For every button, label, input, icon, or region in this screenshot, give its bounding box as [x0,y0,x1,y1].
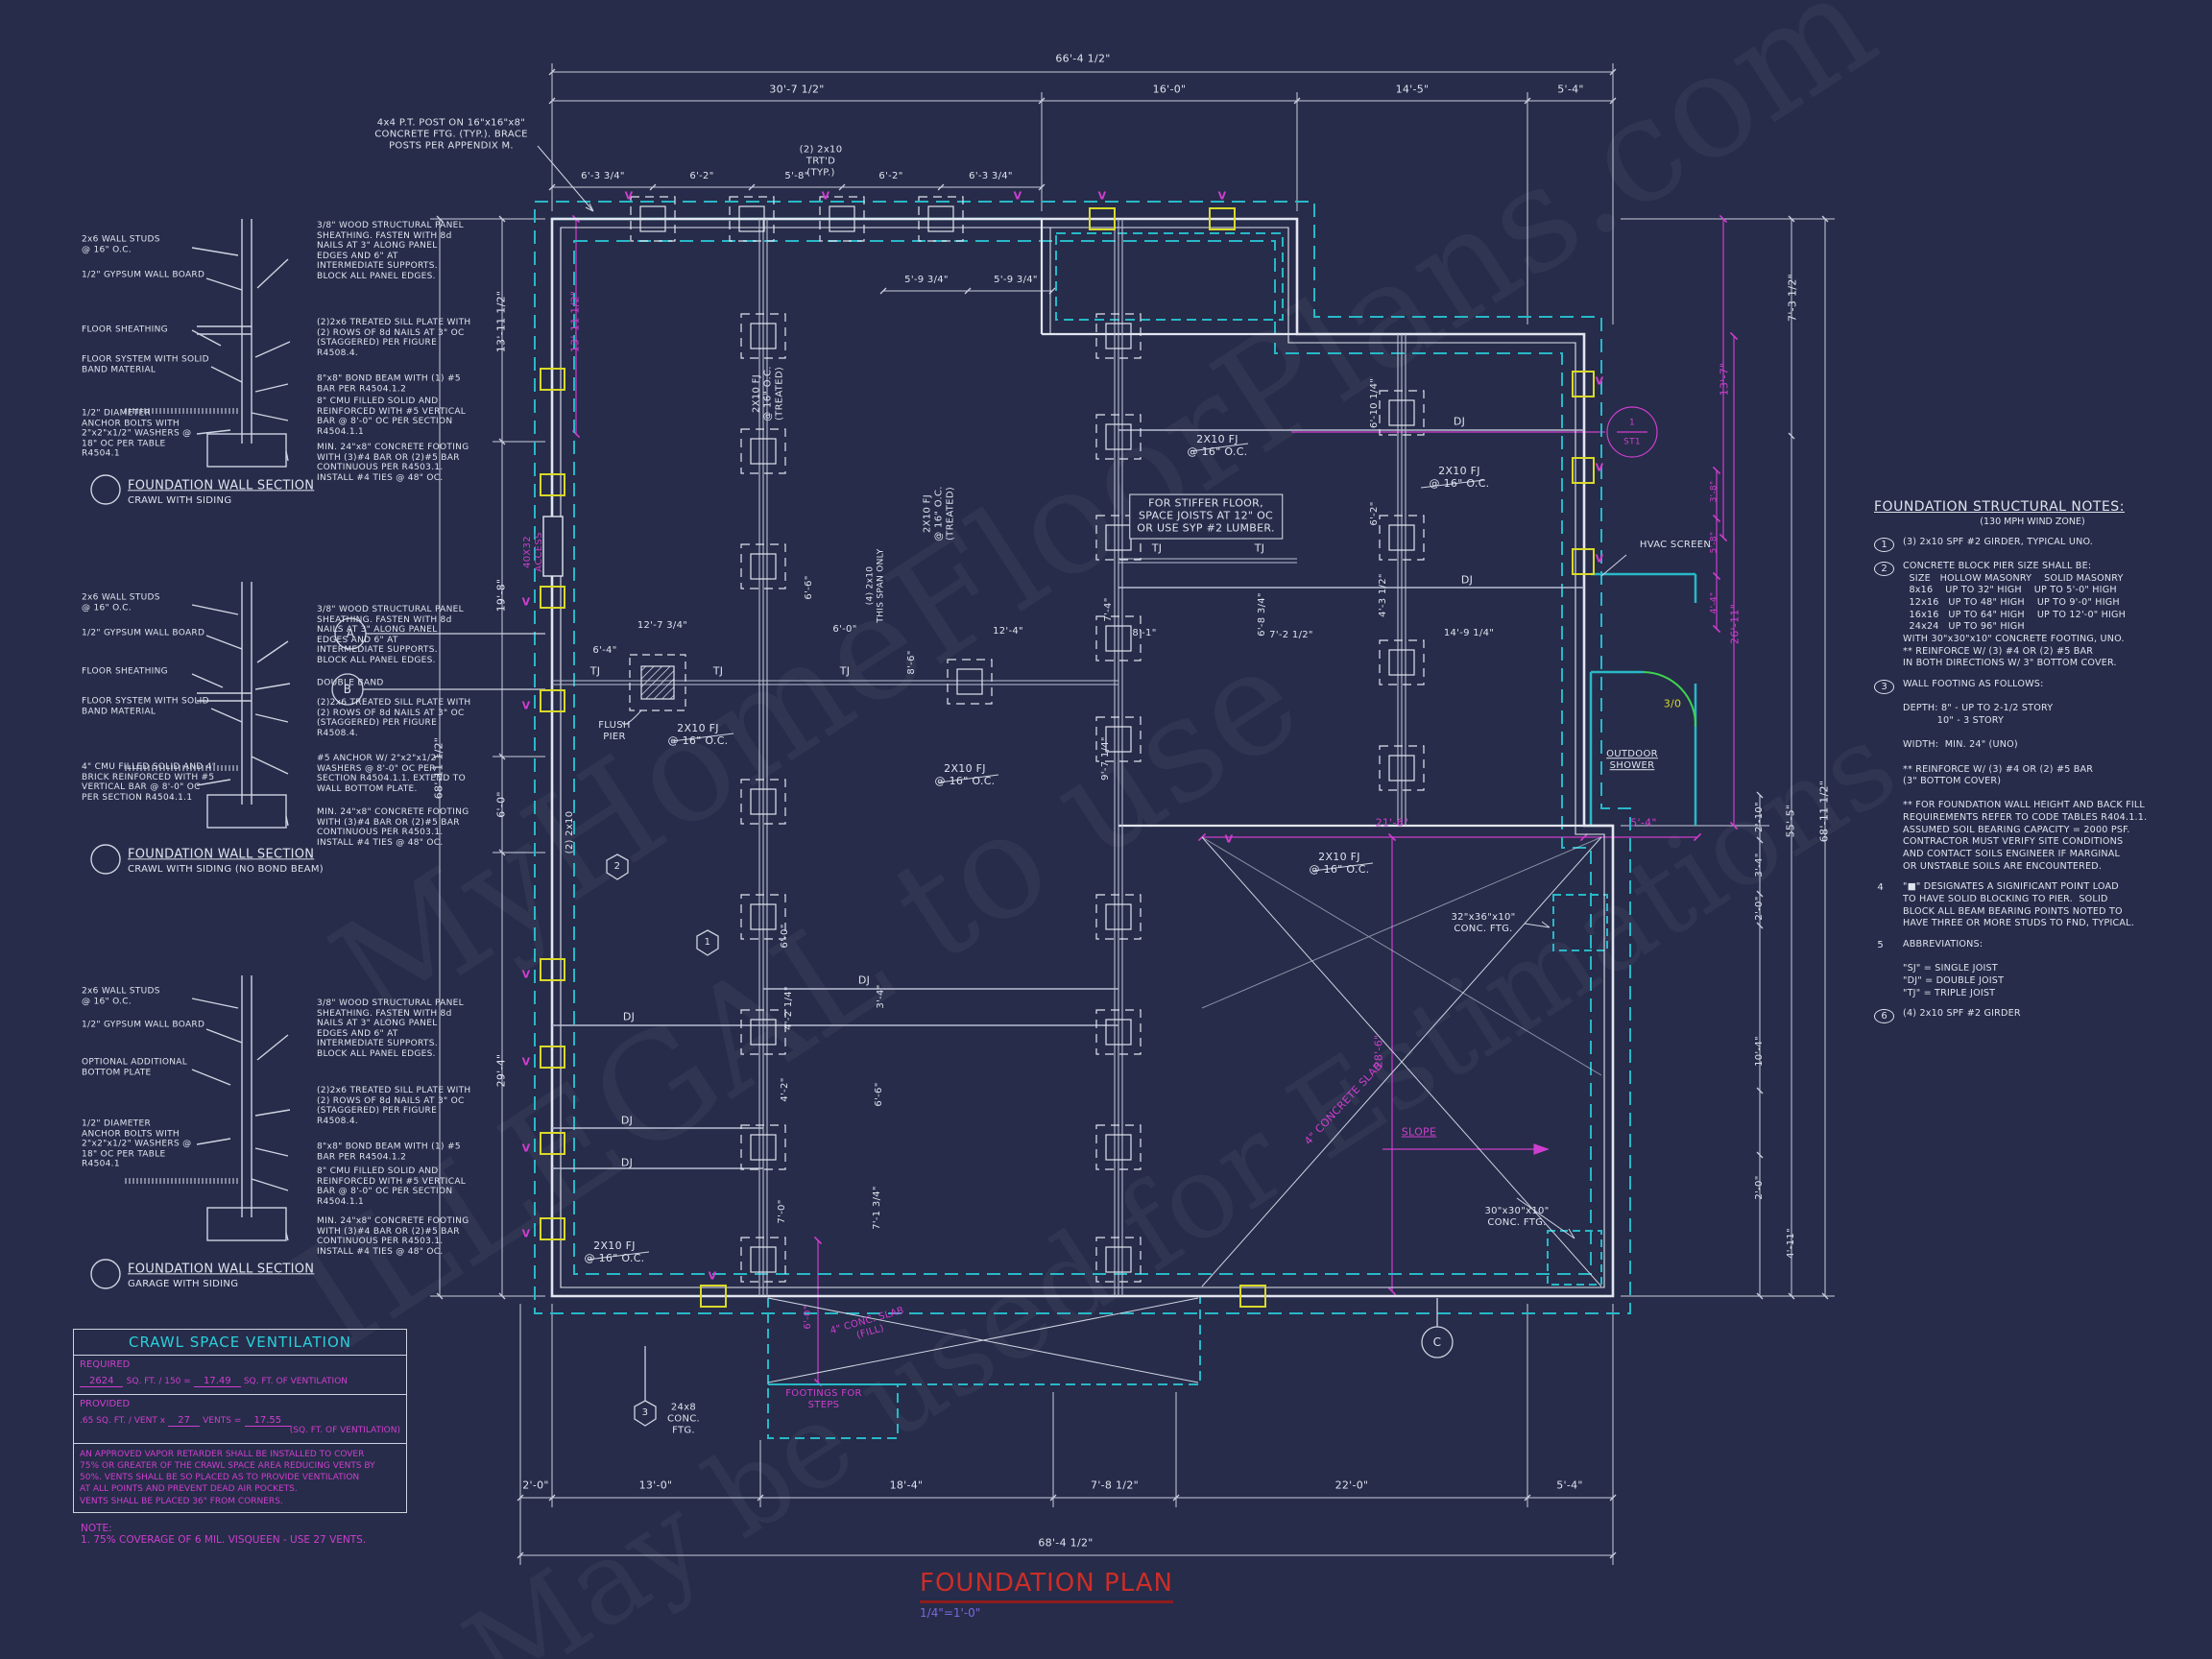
drawing-title: FOUNDATION PLAN [920,1569,1173,1603]
vent-prov-prefix: .65 SQ. FT. / VENT x [80,1416,165,1426]
note-item: 2CONCRETE BLOCK PIER SIZE SHALL BE: SIZE… [1874,561,2212,670]
vent-req-value: 2624 [80,1376,123,1387]
note-item: 4"■" DESIGNATES A SIGNIFICANT POINT LOAD… [1874,881,2212,930]
flush-pier [622,655,685,724]
dimension-lines [430,63,1835,1565]
vent-squares [541,208,1594,1307]
door-swing-arc [1644,672,1695,727]
vent-req-mid: SQ. FT. / 150 = [127,1377,191,1386]
note-item: 6(4) 2x10 SPF #2 GIRDER [1874,1008,2212,1023]
beam-lines [552,219,1584,1296]
drawing-title-block: FOUNDATION PLAN 1/4"=1'-0" [920,1569,1173,1620]
vent-prov-value: 27 [168,1415,200,1427]
leader-lines [538,146,1626,1260]
vapor-retarder-note: AN APPROVED VAPOR RETARDER SHALL BE INST… [74,1444,406,1512]
vent-req-result: 17.49 [194,1376,241,1387]
crawl-space-ventilation-table: CRAWL SPACE VENTILATION REQUIRED 2624 SQ… [73,1329,407,1546]
vent-req-unit: SQ. FT. OF VENTILATION [244,1377,348,1386]
drawing-scale: 1/4"=1'-0" [920,1606,1173,1620]
vent-table-title: CRAWL SPACE VENTILATION [74,1330,406,1356]
pier-squares [631,197,1424,1282]
notes-items: 1(3) 2x10 SPF #2 GIRDER, TYPICAL UNO.2CO… [1874,537,2212,1023]
vent-prov-unit: (SQ. FT. OF VENTILATION) [80,1426,400,1435]
wall-section-details [91,219,290,1288]
section-cut-markers [332,618,1453,1426]
blueprint-sheet: MyHomeFloorPlans.comILLEGAL to useMay be… [0,0,2212,1659]
note-item: 5ABBREVIATIONS: "SJ" = SINGLE JOIST "DJ"… [1874,939,2212,999]
magenta-dimensions [576,219,1734,1382]
slab-diagonals [768,837,1601,1382]
notes-subtitle: (130 MPH WIND ZONE) [1912,517,2152,527]
vent-required-label: REQUIRED [80,1359,400,1370]
foundation-walls [543,219,1613,1296]
vent-note: NOTE: 1. 75% COVERAGE OF 6 MIL. VISQUEEN… [73,1523,407,1546]
note-item: 3WALL FOOTING AS FOLLOWS: DEPTH: 8" - UP… [1874,679,2212,874]
notes-title: FOUNDATION STRUCTURAL NOTES: [1874,499,2212,515]
structural-notes: FOUNDATION STRUCTURAL NOTES: (130 MPH WI… [1874,499,2212,1032]
note-item: 1(3) 2x10 SPF #2 GIRDER, TYPICAL UNO. [1874,537,2212,552]
vent-prov-mid: VENTS = [203,1416,241,1426]
vent-provided-label: PROVIDED [80,1399,400,1409]
vent-prov-result: 17.55 [245,1415,292,1427]
